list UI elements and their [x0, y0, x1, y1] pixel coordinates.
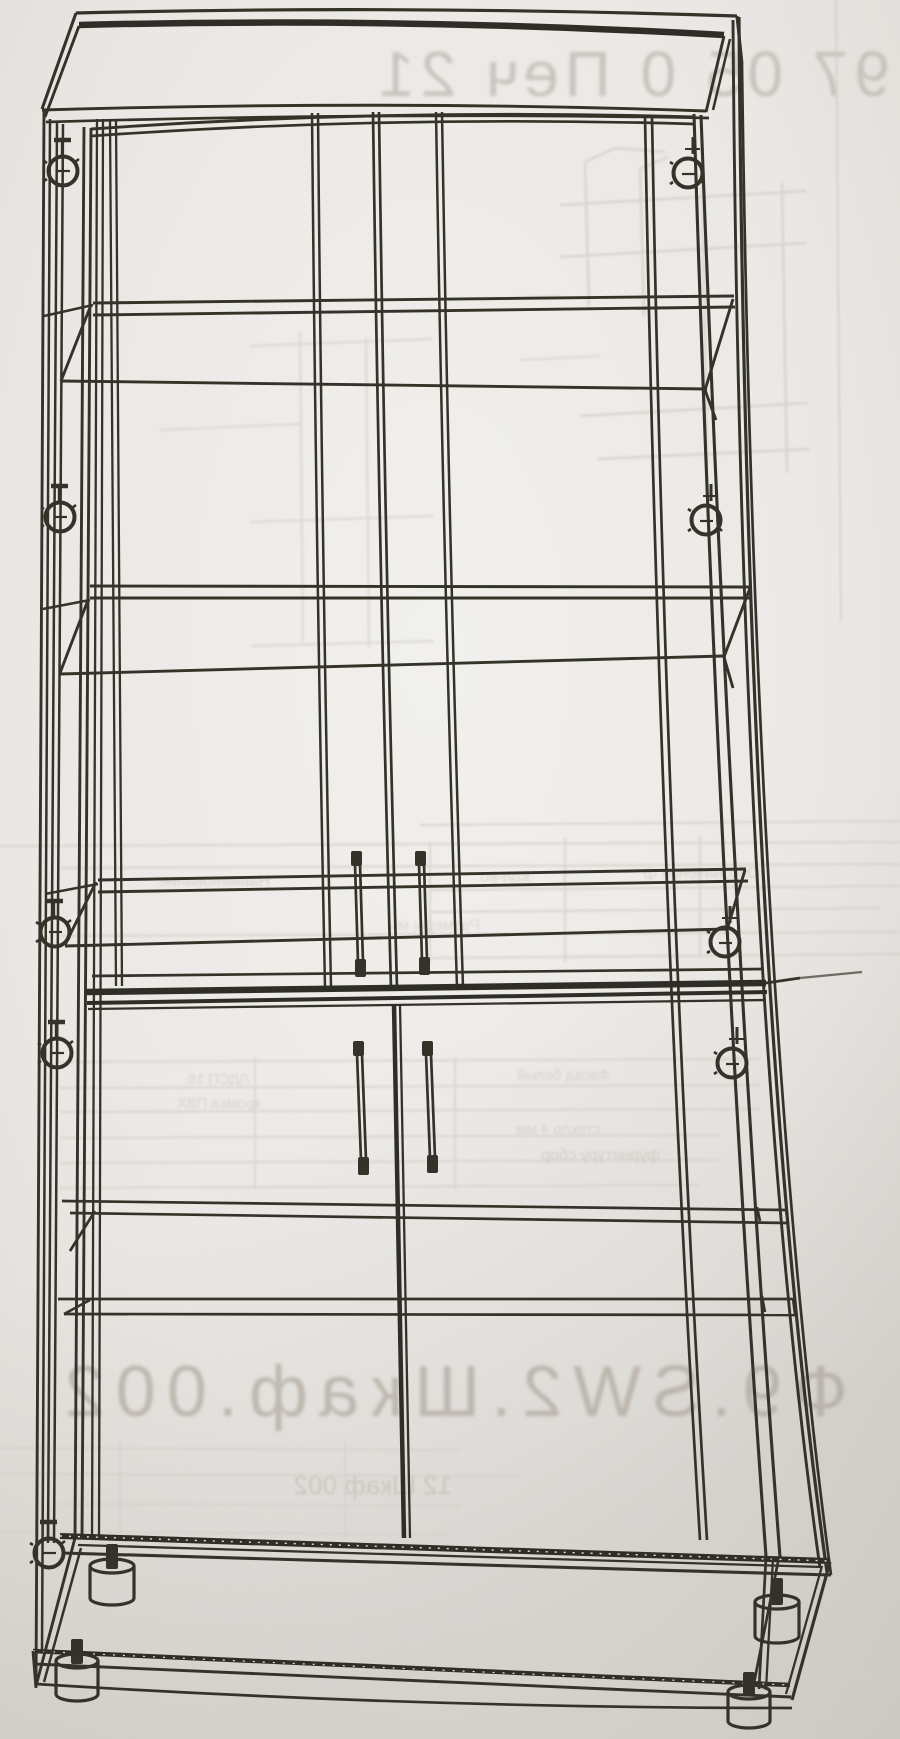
- svg-text:ЛДСП 16: ЛДСП 16: [188, 1071, 250, 1088]
- svg-text:Ф9.SW2.Шкаф.002: Ф9.SW2.Шкаф.002: [54, 1352, 848, 1432]
- svg-text:Наименование: Наименование: [159, 873, 270, 890]
- svg-text:стекло 4 мм: стекло 4 мм: [516, 1121, 600, 1138]
- svg-text:Размеры мм: Размеры мм: [387, 917, 480, 934]
- svg-text:Фасад белый: Фасад белый: [517, 1067, 610, 1084]
- svg-text:кромка ПВХ: кромка ПВХ: [177, 1095, 260, 1112]
- svg-text:фурнитуру сбор: фурнитуру сбор: [541, 1147, 660, 1164]
- svg-text:97 05 0 Печ 21: 97 05 0 Печ 21: [373, 38, 890, 110]
